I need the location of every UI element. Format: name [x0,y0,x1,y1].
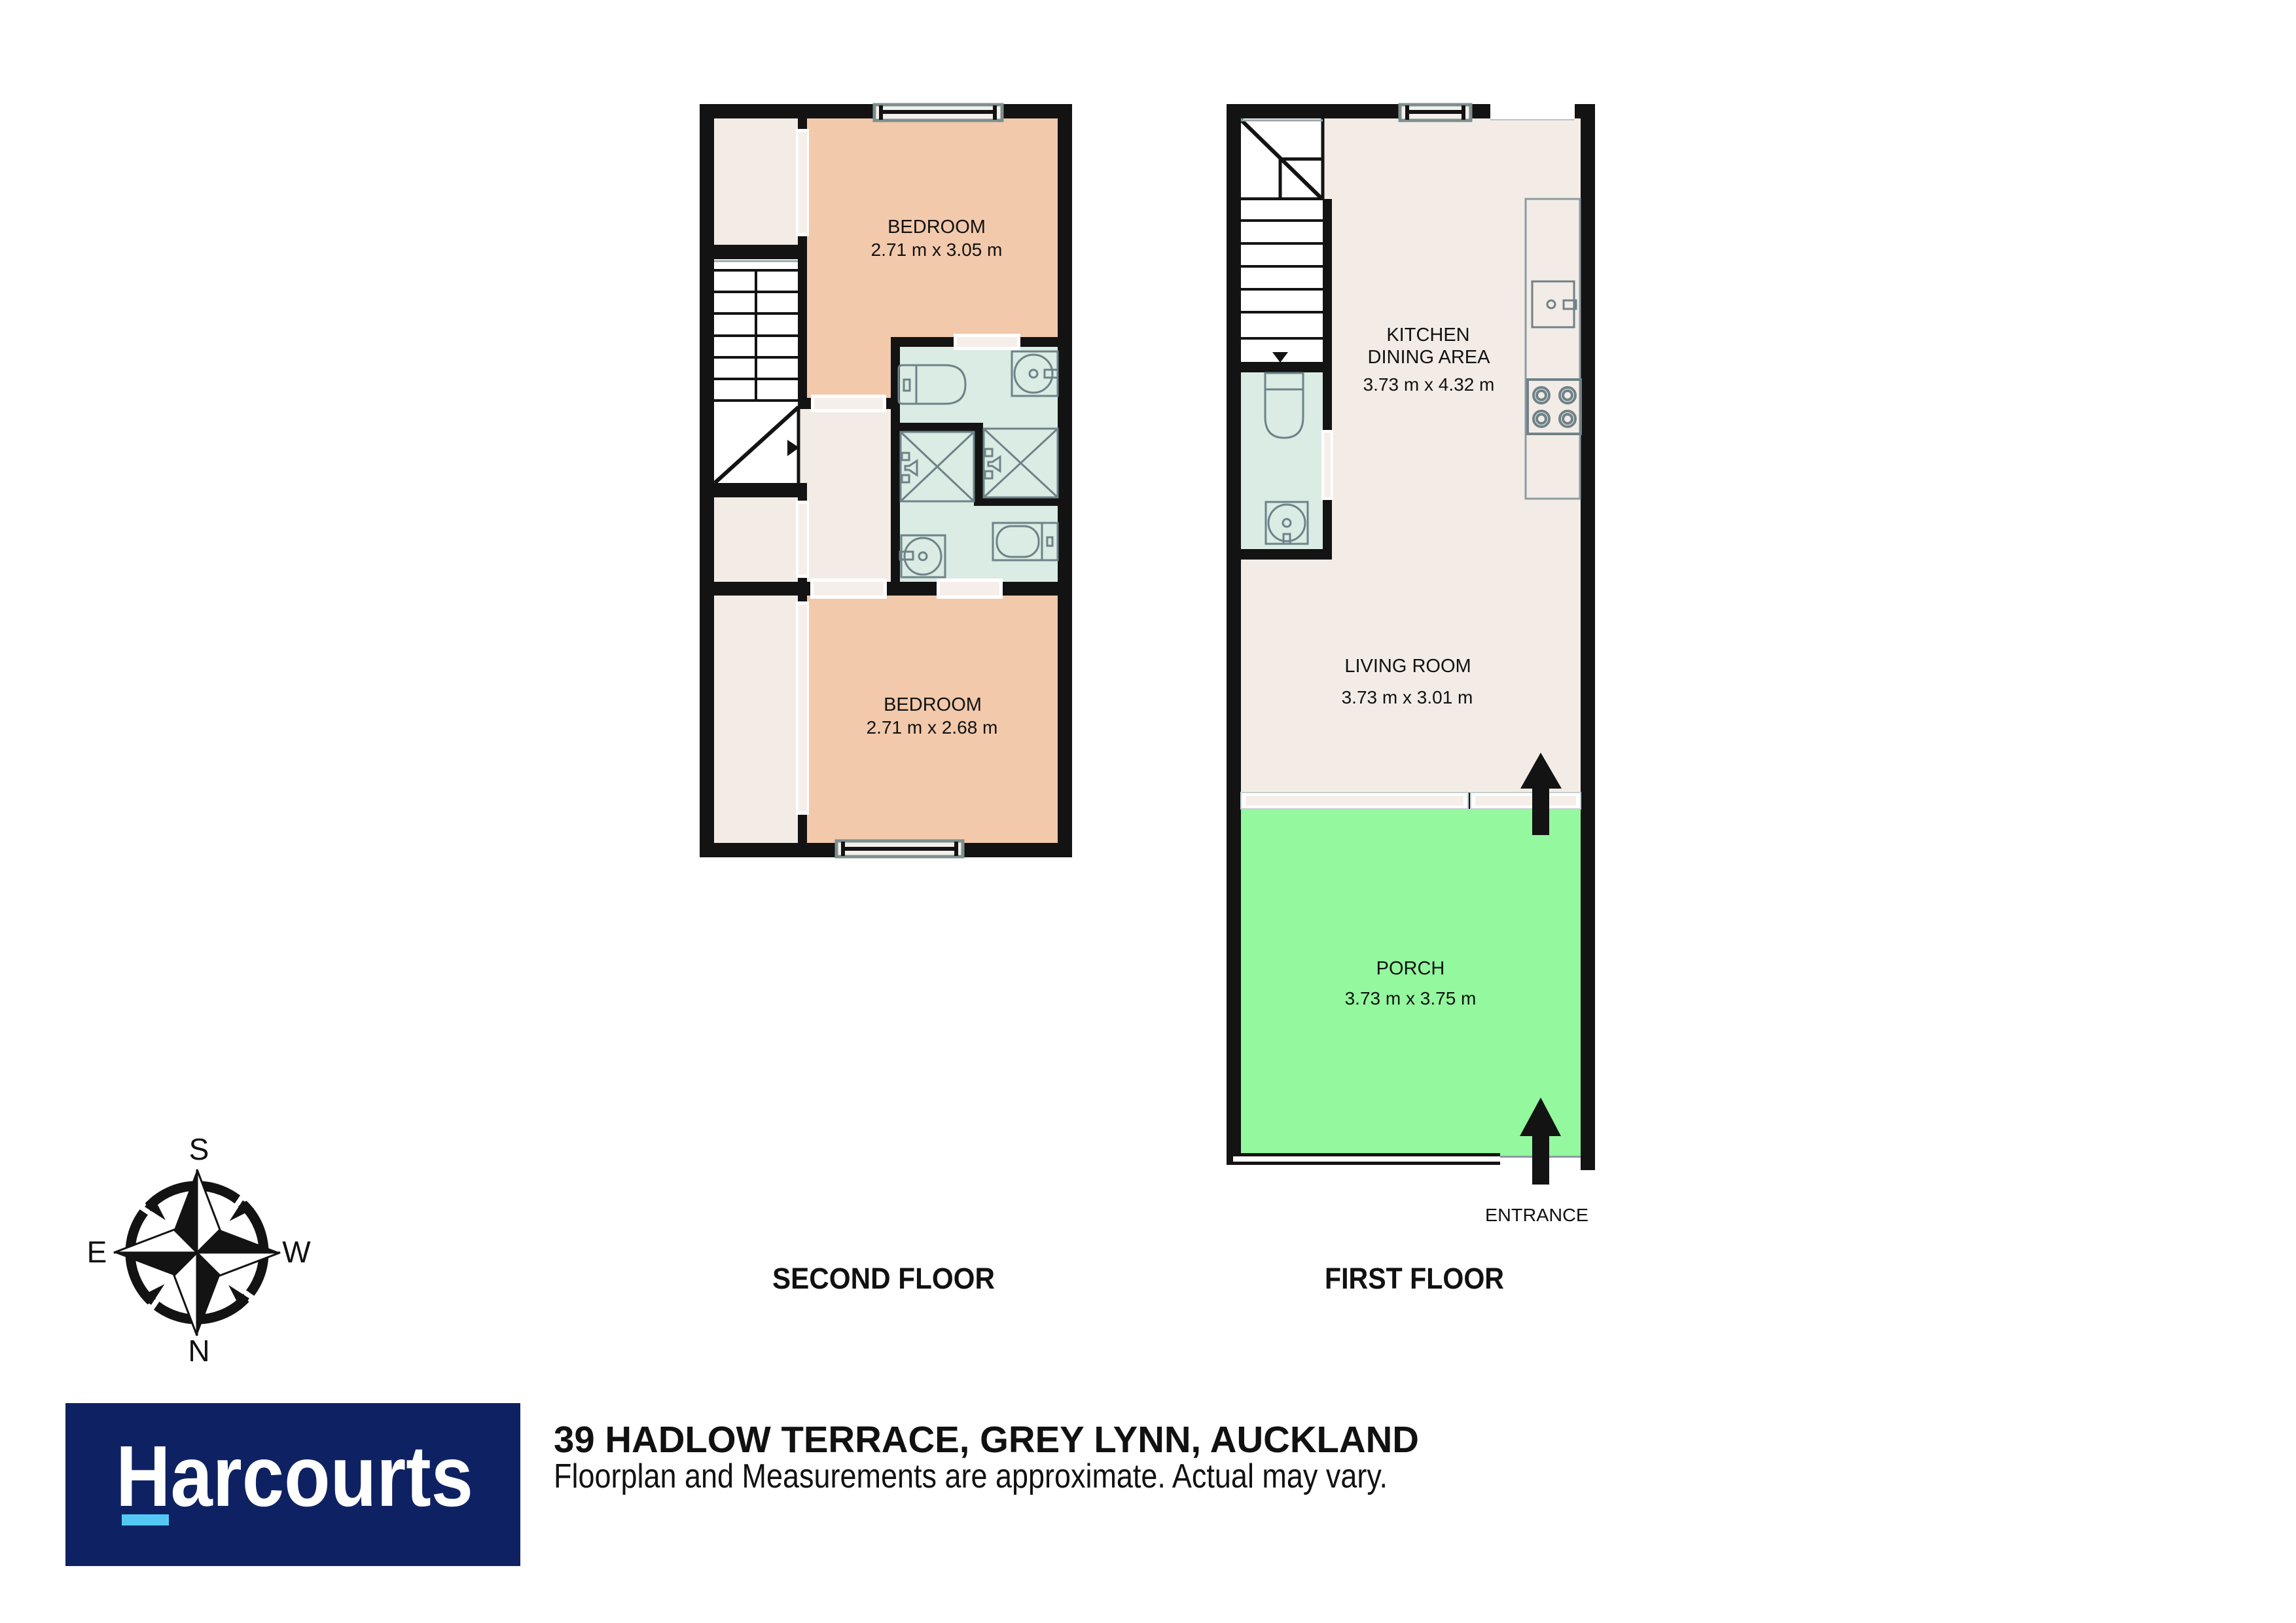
svg-text:S: S [189,1132,209,1166]
svg-text:Harcourts: Harcourts [116,1428,473,1524]
svg-text:BEDROOM: BEDROOM [884,694,982,715]
svg-text:Floorplan and Measurements are: Floorplan and Measurements are approxima… [554,1457,1388,1495]
svg-text:E: E [87,1235,107,1269]
svg-text:N: N [188,1334,209,1368]
svg-text:KITCHEN: KITCHEN [1386,325,1469,346]
svg-text:3.73 m x 3.01 m: 3.73 m x 3.01 m [1342,687,1473,707]
svg-text:ENTRANCE: ENTRANCE [1485,1205,1588,1225]
svg-text:PORCH: PORCH [1376,958,1445,979]
svg-text:FIRST FLOOR: FIRST FLOOR [1325,1262,1504,1295]
svg-text:2.71 m x 2.68 m: 2.71 m x 2.68 m [867,717,998,738]
svg-text:DINING AREA: DINING AREA [1368,347,1491,368]
svg-text:BEDROOM: BEDROOM [888,217,986,238]
svg-text:3.73 m x 4.32 m: 3.73 m x 4.32 m [1363,374,1495,395]
svg-text:39 HADLOW TERRACE, GREY LYNN,: 39 HADLOW TERRACE, GREY LYNN, AUCKLAND [554,1419,1419,1461]
svg-text:W: W [282,1235,311,1269]
svg-text:2.71 m x 3.05 m: 2.71 m x 3.05 m [871,240,1003,260]
svg-text:LIVING ROOM: LIVING ROOM [1344,656,1471,677]
svg-text:SECOND FLOOR: SECOND FLOOR [772,1262,995,1295]
svg-text:3.73 m x 3.75 m: 3.73 m x 3.75 m [1345,988,1477,1008]
